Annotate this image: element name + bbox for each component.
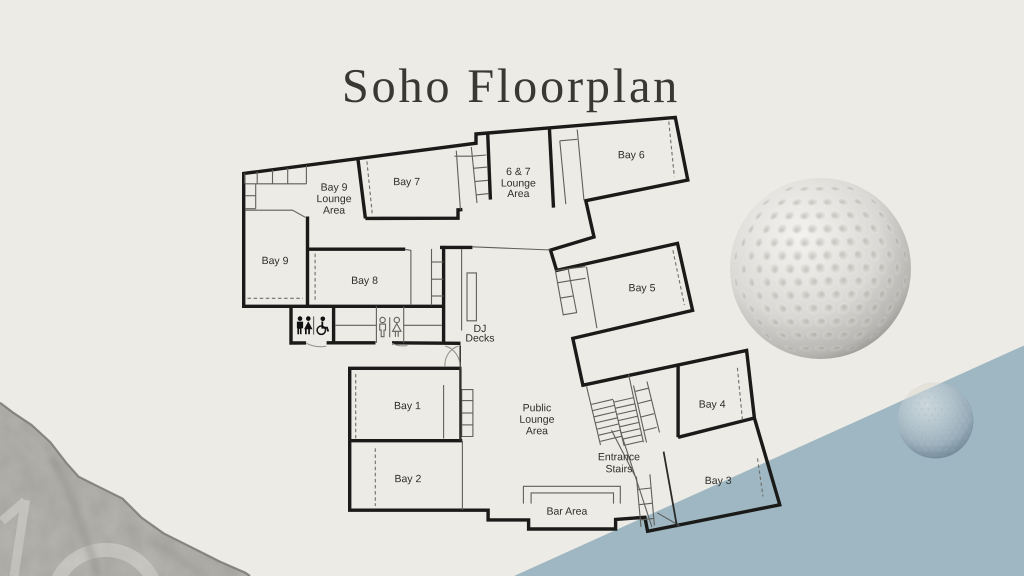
svg-text:Bay 2: Bay 2 xyxy=(394,473,421,485)
svg-text:Bay 8: Bay 8 xyxy=(351,275,378,287)
svg-text:Bay 9: Bay 9 xyxy=(262,255,289,267)
svg-text:6 & 7: 6 & 7 xyxy=(506,166,531,178)
svg-text:Bay 7: Bay 7 xyxy=(393,176,420,188)
svg-text:Bay 1: Bay 1 xyxy=(394,400,421,412)
svg-text:Bay 3: Bay 3 xyxy=(705,475,732,487)
svg-text:Stairs: Stairs xyxy=(605,463,632,475)
svg-text:Bay 5: Bay 5 xyxy=(629,282,656,294)
svg-text:Lounge: Lounge xyxy=(519,414,554,426)
svg-text:Entrance: Entrance xyxy=(598,451,640,463)
svg-text:Lounge: Lounge xyxy=(317,193,352,205)
svg-text:Public: Public xyxy=(523,402,552,414)
svg-text:Decks: Decks xyxy=(465,332,494,344)
svg-text:Area: Area xyxy=(526,425,548,437)
svg-text:Soho Floorplan: Soho Floorplan xyxy=(342,60,680,113)
svg-text:Bar Area: Bar Area xyxy=(546,506,587,518)
svg-text:Area: Area xyxy=(323,205,345,217)
svg-text:Bay 9: Bay 9 xyxy=(321,182,348,194)
svg-text:Bay 6: Bay 6 xyxy=(618,149,645,161)
svg-text:Area: Area xyxy=(507,188,529,200)
svg-text:Bay 4: Bay 4 xyxy=(699,399,726,411)
